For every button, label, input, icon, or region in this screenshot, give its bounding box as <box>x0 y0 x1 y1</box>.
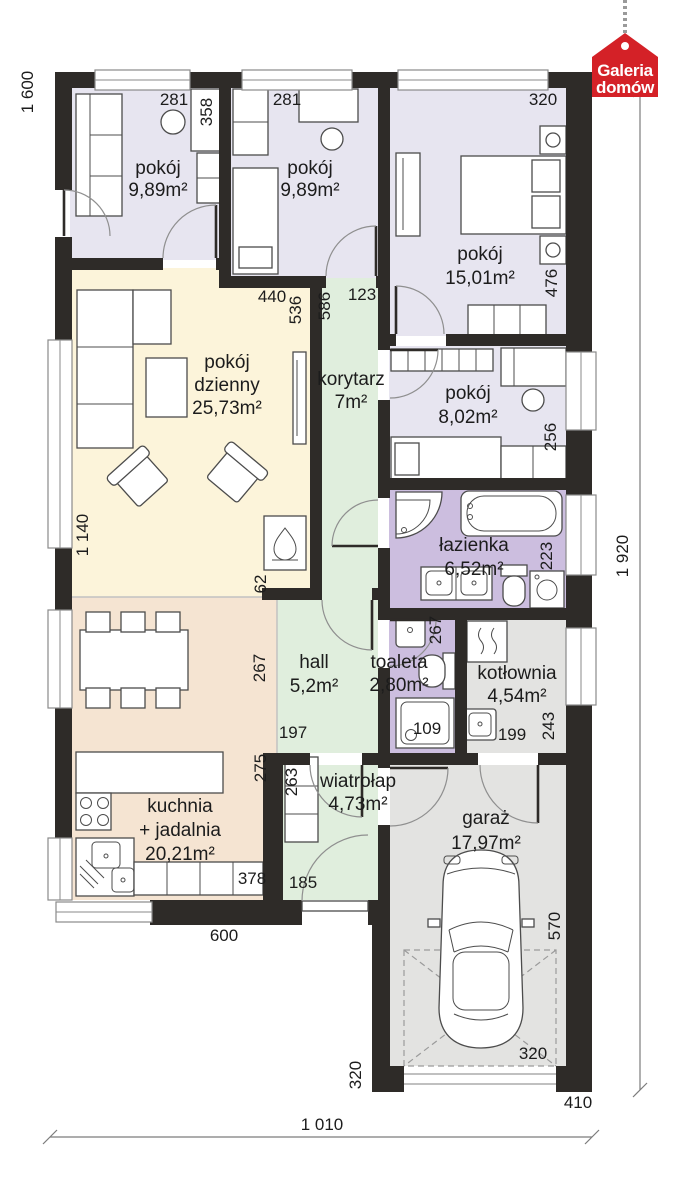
dim-label: 1 010 <box>301 1115 344 1134</box>
boiler <box>467 621 507 662</box>
coffee-table <box>146 358 187 417</box>
room-label: kotłownia <box>477 663 557 684</box>
dim-label: 267 <box>426 616 445 644</box>
dim-label: 123 <box>348 285 376 304</box>
dim-label: 197 <box>279 723 307 742</box>
dim-label: 570 <box>545 912 564 940</box>
desk <box>299 89 358 122</box>
pillow <box>395 443 419 475</box>
wardrobe <box>396 153 420 236</box>
dim-label: 281 <box>160 90 188 109</box>
dim-label: 378 <box>238 869 266 888</box>
room-area: 4,54m² <box>487 686 546 707</box>
dim-label: 267 <box>250 654 269 682</box>
pillow <box>532 160 560 192</box>
floor-plan-canvas: pokój 9,89m² pokój 9,89m² pokój 15,01m² … <box>0 0 678 1200</box>
car-body <box>439 850 523 1048</box>
dim-label: 256 <box>541 423 560 451</box>
car-mirror <box>428 919 440 927</box>
floor-plan-page: pokój 9,89m² pokój 9,89m² pokój 15,01m² … <box>0 0 678 1200</box>
room-label: hall <box>299 652 329 673</box>
dim-label: 281 <box>273 90 301 109</box>
car <box>428 850 534 1048</box>
lamp <box>546 243 560 257</box>
room-label: wiatrołap <box>319 771 396 792</box>
corner-sofa-chaise <box>133 290 171 344</box>
dining-chair <box>156 688 180 708</box>
entrance-door-leaf <box>302 901 368 911</box>
dining-chair <box>86 688 110 708</box>
room-area: 7m² <box>335 392 368 413</box>
dim-label: 275 <box>251 754 270 782</box>
dim-label: 263 <box>282 768 301 796</box>
dim-label: 62 <box>251 575 270 594</box>
dim-label: 223 <box>537 542 556 570</box>
room-area: 2,80m² <box>369 675 428 696</box>
dresser <box>468 305 546 339</box>
dim-label: 600 <box>210 926 238 945</box>
chair <box>161 110 185 134</box>
dim-label: 185 <box>289 873 317 892</box>
dim-label: 243 <box>539 712 558 740</box>
dim-label: 199 <box>498 725 526 744</box>
room-area: 20,21m² <box>145 844 215 865</box>
pillow <box>239 247 272 268</box>
dim-label: 440 <box>258 287 286 306</box>
room-label: pokój <box>445 383 490 404</box>
lamp <box>546 133 560 147</box>
dim-label: 109 <box>413 719 441 738</box>
room-area: 8,02m² <box>438 407 497 428</box>
room-area: 5,2m² <box>290 676 339 697</box>
dim-label: 536 <box>286 296 305 324</box>
room-label: + jadalnia <box>139 820 221 841</box>
room-corridor <box>322 278 378 600</box>
corner-sink-unit <box>76 838 134 896</box>
dining-chair <box>156 612 180 632</box>
dining-chair <box>121 612 145 632</box>
room-label: toaleta <box>370 652 427 673</box>
dining-chair <box>86 612 110 632</box>
fireplace <box>264 516 306 570</box>
chair <box>522 389 544 411</box>
wardrobe <box>501 348 566 386</box>
corner-sofa <box>77 290 133 448</box>
logo-hole <box>621 42 629 50</box>
dim-label: 320 <box>519 1044 547 1063</box>
chair <box>321 128 343 150</box>
car-mirror <box>522 919 534 927</box>
worktop <box>76 752 223 793</box>
room-area: 6,52m² <box>444 559 503 580</box>
toilet-tank <box>501 565 527 576</box>
room-label: kuchnia <box>147 796 213 817</box>
dim-label: 358 <box>197 98 216 126</box>
room-label: dzienny <box>194 375 260 396</box>
room-area: 9,89m² <box>280 180 339 201</box>
room-area: 25,73m² <box>192 398 262 419</box>
room-label: pokój <box>204 352 249 373</box>
dim-label: 1 920 <box>613 535 632 578</box>
dining-chair <box>121 688 145 708</box>
dining-table <box>80 630 188 690</box>
room-area: 15,01m² <box>445 268 515 289</box>
tv <box>293 352 306 444</box>
room-label: pokój <box>457 244 502 265</box>
room-label: łazienka <box>439 535 509 556</box>
dim-label: 476 <box>542 269 561 297</box>
dim-label: 586 <box>315 292 334 320</box>
room-label: pokój <box>287 158 332 179</box>
room-area: 17,97m² <box>451 833 521 854</box>
dim-label: 1 600 <box>18 71 37 114</box>
dim-label: 320 <box>346 1061 365 1089</box>
logo-text-line2: domów <box>596 78 655 97</box>
toilet <box>503 576 525 606</box>
dim-label: 320 <box>529 90 557 109</box>
dim-label: 410 <box>564 1093 592 1112</box>
room-area: 9,89m² <box>128 180 187 201</box>
room-label: garaż <box>462 808 510 829</box>
room-area: 4,73m² <box>328 794 387 815</box>
sofa <box>76 94 122 216</box>
logo: Galeria domów <box>592 0 658 97</box>
room-label: pokój <box>135 158 180 179</box>
dim-label: 1 140 <box>73 514 92 557</box>
room-label: korytarz <box>317 369 385 390</box>
pillow <box>532 196 560 228</box>
